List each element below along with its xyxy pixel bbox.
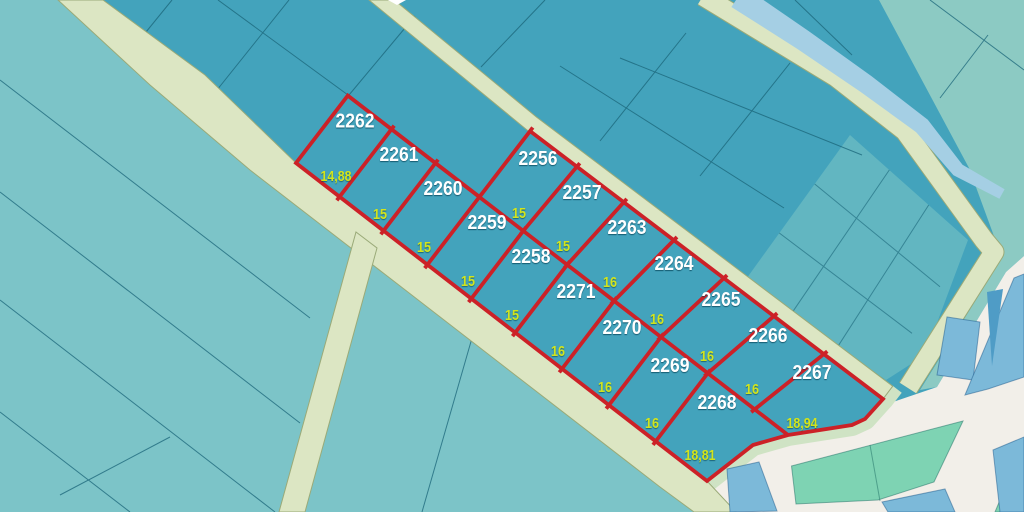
svg-text:15: 15 (556, 238, 570, 255)
svg-text:15: 15 (461, 273, 475, 290)
svg-text:2256: 2256 (519, 148, 558, 170)
svg-text:16: 16 (598, 379, 612, 396)
svg-text:2271: 2271 (557, 281, 596, 303)
svg-text:2263: 2263 (608, 217, 647, 239)
svg-text:14,88: 14,88 (321, 168, 352, 185)
svg-text:2259: 2259 (468, 212, 507, 234)
svg-text:2264: 2264 (655, 253, 695, 275)
svg-text:16: 16 (650, 311, 664, 328)
svg-text:15: 15 (505, 307, 519, 324)
svg-text:2267: 2267 (793, 362, 832, 384)
svg-text:15: 15 (417, 239, 431, 256)
svg-text:2262: 2262 (336, 111, 375, 133)
svg-text:2260: 2260 (424, 178, 463, 200)
svg-text:15: 15 (512, 205, 526, 222)
svg-text:2257: 2257 (563, 182, 602, 204)
svg-text:16: 16 (551, 343, 565, 360)
svg-text:2265: 2265 (702, 289, 741, 311)
svg-text:16: 16 (745, 381, 759, 398)
svg-text:2270: 2270 (603, 317, 642, 339)
svg-text:2268: 2268 (698, 392, 737, 414)
svg-text:16: 16 (603, 274, 617, 291)
svg-text:18,81: 18,81 (685, 447, 716, 464)
svg-text:2269: 2269 (651, 355, 690, 377)
svg-text:2261: 2261 (380, 144, 419, 166)
svg-text:2266: 2266 (749, 325, 788, 347)
svg-text:16: 16 (645, 415, 659, 432)
svg-text:15: 15 (373, 206, 387, 223)
svg-text:2258: 2258 (512, 246, 551, 268)
svg-text:18,94: 18,94 (787, 415, 819, 432)
svg-text:16: 16 (700, 348, 714, 365)
